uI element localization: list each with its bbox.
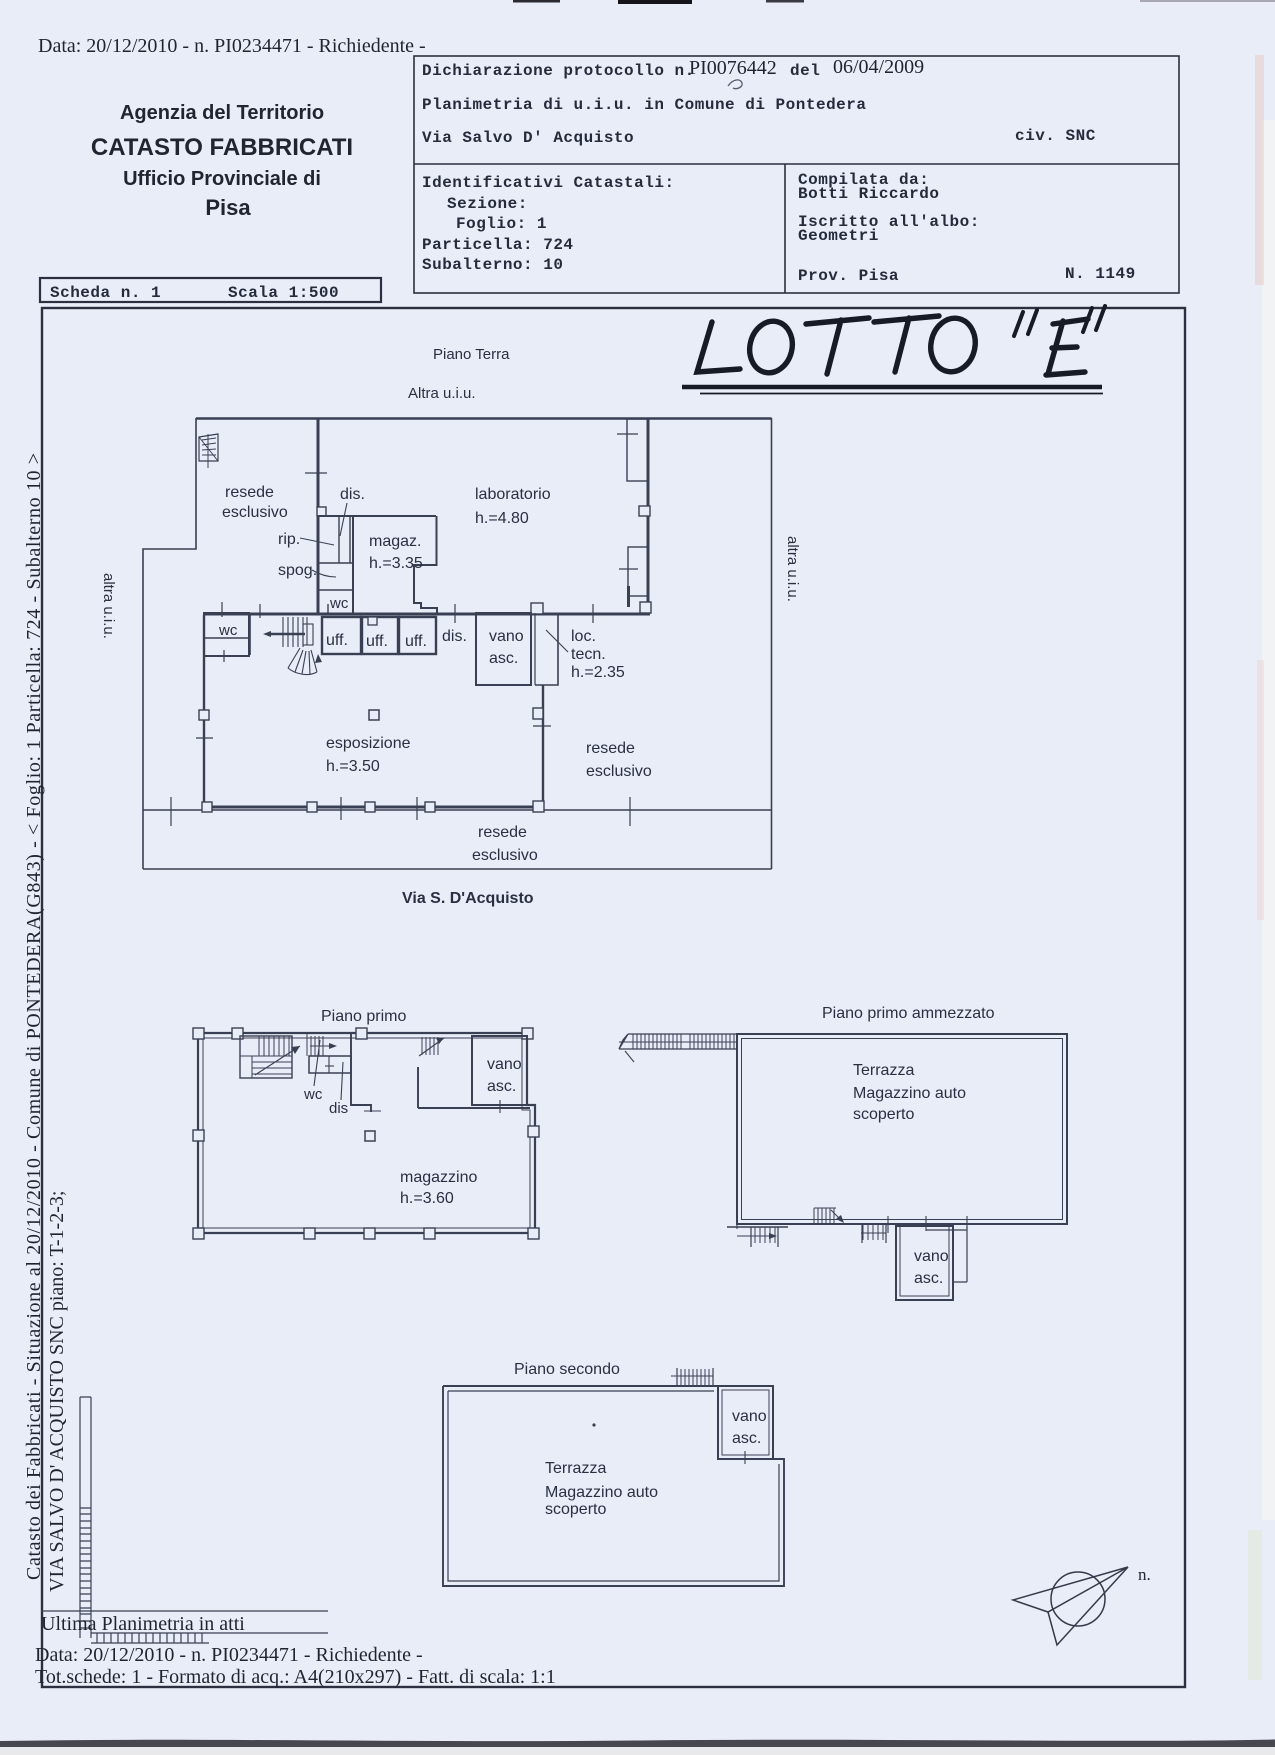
svg-text:N. 1149: N. 1149 xyxy=(1065,265,1136,283)
svg-text:wc: wc xyxy=(329,595,349,612)
svg-text:spog.: spog. xyxy=(278,562,317,579)
svg-text:Via Salvo D' Acquisto: Via Salvo D' Acquisto xyxy=(422,129,634,147)
svg-text:Ultima Planimetria in atti: Ultima Planimetria in atti xyxy=(41,1613,245,1635)
svg-text:Catasto dei Fabbricati - Situa: Catasto dei Fabbricati - Situazione al 2… xyxy=(23,452,45,1580)
svg-text:h.=3.60: h.=3.60 xyxy=(400,1190,454,1207)
svg-text:06/04/2009: 06/04/2009 xyxy=(833,56,924,78)
svg-text:Dichiarazione protocollo n.: Dichiarazione protocollo n. xyxy=(422,62,695,80)
svg-text:scoperto: scoperto xyxy=(853,1106,914,1123)
svg-text:Scala 1:500: Scala 1:500 xyxy=(228,284,339,302)
svg-text:esclusivo: esclusivo xyxy=(586,763,652,780)
svg-text:uff.: uff. xyxy=(405,633,427,650)
svg-text:Agenzia del Territorio: Agenzia del Territorio xyxy=(120,102,324,124)
svg-text:Subalterno: 10: Subalterno: 10 xyxy=(422,256,563,274)
svg-text:altra u.i.u.: altra u.i.u. xyxy=(784,536,801,602)
svg-text:Geometri: Geometri xyxy=(798,227,879,245)
svg-text:Magazzino auto: Magazzino auto xyxy=(545,1484,658,1501)
svg-text:Identificativi Catastali:: Identificativi Catastali: xyxy=(422,174,675,192)
svg-text:Piano primo: Piano primo xyxy=(321,1008,406,1025)
svg-text:scoperto: scoperto xyxy=(545,1501,606,1518)
svg-text:Terrazza: Terrazza xyxy=(545,1460,606,1477)
svg-text:asc.: asc. xyxy=(487,1078,516,1095)
svg-text:Tot.schede: 1 - Formato di acq: Tot.schede: 1 - Formato di acq.: A4(210x… xyxy=(35,1666,556,1688)
svg-text:Botti Riccardo: Botti Riccardo xyxy=(798,185,939,203)
svg-text:Terrazza: Terrazza xyxy=(853,1062,914,1079)
svg-text:resede: resede xyxy=(586,740,635,757)
svg-text:tecn.: tecn. xyxy=(571,646,606,663)
svg-text:h.=4.80: h.=4.80 xyxy=(475,510,529,527)
svg-text:rip.: rip. xyxy=(278,531,300,548)
svg-text:resede: resede xyxy=(478,824,527,841)
svg-text:esclusivo: esclusivo xyxy=(222,504,288,521)
svg-text:h.=2.35: h.=2.35 xyxy=(571,664,625,681)
svg-text:VIA SALVO D' ACQUISTO SNC pian: VIA SALVO D' ACQUISTO SNC piano: T-1-2-3… xyxy=(46,1191,68,1592)
svg-text:Via S. D'Acquisto: Via S. D'Acquisto xyxy=(402,890,534,907)
svg-text:Ufficio Provinciale di: Ufficio Provinciale di xyxy=(123,168,321,190)
svg-text:Sezione:: Sezione: xyxy=(447,195,528,213)
svg-text:Pisa: Pisa xyxy=(205,195,251,220)
svg-text:n.: n. xyxy=(1138,1565,1151,1584)
svg-text:Data: 20/12/2010 - n. PI02344: Data: 20/12/2010 - n. PI0234471 - Richie… xyxy=(35,1644,423,1666)
svg-text:dis.: dis. xyxy=(442,628,467,645)
svg-text:altra u.i.u.: altra u.i.u. xyxy=(100,573,117,639)
svg-text:dis: dis xyxy=(329,1100,348,1117)
svg-text:loc.: loc. xyxy=(571,628,596,645)
svg-text:asc.: asc. xyxy=(489,650,518,667)
svg-text:vano: vano xyxy=(914,1248,949,1265)
svg-text:Scheda n. 1: Scheda n. 1 xyxy=(50,284,161,302)
svg-text:Foglio: 1: Foglio: 1 xyxy=(456,215,547,233)
svg-text:Piano primo ammezzato: Piano primo ammezzato xyxy=(822,1005,995,1022)
svg-text:PI0076442: PI0076442 xyxy=(689,57,777,79)
svg-text:vano: vano xyxy=(487,1056,522,1073)
svg-text:asc.: asc. xyxy=(914,1270,943,1287)
svg-text:esposizione: esposizione xyxy=(326,735,411,752)
svg-text:del: del xyxy=(790,62,820,80)
svg-text:dis.: dis. xyxy=(340,486,365,503)
svg-text:Planimetria di u.i.u. in Comun: Planimetria di u.i.u. in Comune di Ponte… xyxy=(422,96,866,114)
svg-text:vano: vano xyxy=(732,1408,767,1425)
svg-text:vano: vano xyxy=(489,628,524,645)
svg-text:Piano Terra: Piano Terra xyxy=(433,346,510,363)
svg-text:CATASTO FABBRICATI: CATASTO FABBRICATI xyxy=(91,134,353,161)
svg-text:Magazzino auto: Magazzino auto xyxy=(853,1085,966,1102)
svg-text:Data: 20/12/2010 - n. PI02344: Data: 20/12/2010 - n. PI0234471 - Richie… xyxy=(38,35,426,57)
svg-text:Particella: 724: Particella: 724 xyxy=(422,236,574,254)
svg-text:uff.: uff. xyxy=(326,632,348,649)
svg-text:h.=3.50: h.=3.50 xyxy=(326,758,380,775)
svg-text:h.=3.35: h.=3.35 xyxy=(369,555,423,572)
svg-text:esclusivo: esclusivo xyxy=(472,847,538,864)
svg-text:wc: wc xyxy=(303,1086,323,1103)
svg-text:laboratorio: laboratorio xyxy=(475,486,551,503)
svg-text:magazzino: magazzino xyxy=(400,1169,477,1186)
svg-text:Prov. Pisa: Prov. Pisa xyxy=(798,267,899,285)
svg-text:asc.: asc. xyxy=(732,1430,761,1447)
svg-text:wc: wc xyxy=(218,622,238,639)
svg-text:Piano secondo: Piano secondo xyxy=(514,1361,620,1378)
svg-text:uff.: uff. xyxy=(366,633,388,650)
svg-text:resede: resede xyxy=(225,484,274,501)
svg-text:magaz.: magaz. xyxy=(369,533,421,550)
svg-text:civ. SNC: civ. SNC xyxy=(1015,127,1096,145)
svg-text:Altra u.i.u.: Altra u.i.u. xyxy=(408,385,476,402)
